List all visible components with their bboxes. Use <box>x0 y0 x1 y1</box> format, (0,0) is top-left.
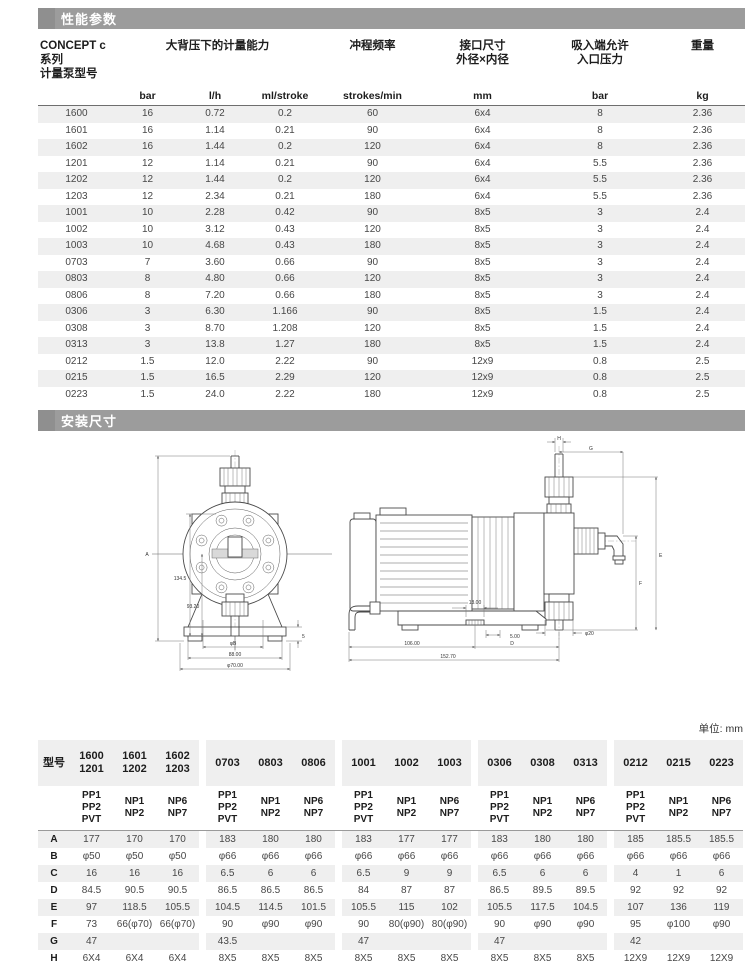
table-cell: 2.34 <box>180 189 250 206</box>
table-cell: 4.68 <box>180 238 250 255</box>
table-cell: 0306 <box>478 740 521 786</box>
table-cell: NP6 NP7 <box>292 786 335 831</box>
table-cell: 1.5 <box>540 321 660 338</box>
table-cell: 0803 <box>38 271 115 288</box>
unit-port: mm <box>425 81 540 106</box>
table-cell: φ50 <box>156 848 199 865</box>
table-cell: 16 <box>115 123 180 140</box>
table-cell: 8X5 <box>428 950 471 967</box>
col-header-weight: 重量 <box>660 36 745 81</box>
table-row: F7366(φ70)66(φ70)90φ90φ909080(φ90)80(φ90… <box>38 916 743 933</box>
table-cell: 12 <box>115 189 180 206</box>
table-row: C1616166.5666.5996.566416 <box>38 865 743 882</box>
dim-label-g: G <box>589 446 593 452</box>
table-cell <box>113 933 156 950</box>
table-cell: PP1 PP2 PVT <box>614 786 657 831</box>
table-cell: 90 <box>320 304 425 321</box>
table-cell: 8X5 <box>206 950 249 967</box>
dim-label-height-1: 134.5 <box>174 576 187 582</box>
table-cell: 8 <box>115 271 180 288</box>
table-cell: 86.5 <box>249 882 292 899</box>
table-cell: 16.5 <box>180 370 250 387</box>
table-cell: 0212 <box>38 354 115 371</box>
unit-suction: bar <box>540 81 660 106</box>
table-cell: φ66 <box>385 848 428 865</box>
group-gap <box>199 916 206 933</box>
table-cell: 5.5 <box>540 172 660 189</box>
perf-header-row: CONCEPT c系列 计量泵型号 大背压下的计量能力 冲程频率 接口尺寸 外径… <box>38 36 745 81</box>
group-gap <box>199 786 206 831</box>
table-cell: NP1 NP2 <box>113 786 156 831</box>
unit-blank <box>38 81 115 106</box>
table-cell: 16 <box>156 865 199 882</box>
table-cell: PP1 PP2 PVT <box>478 786 521 831</box>
table-cell: 177 <box>385 831 428 849</box>
table-cell: 92 <box>657 882 700 899</box>
table-cell: 24.0 <box>180 387 250 404</box>
table-cell: 0223 <box>700 740 743 786</box>
table-cell: 9 <box>428 865 471 882</box>
table-cell: 86.5 <box>292 882 335 899</box>
table-cell: 0306 <box>38 304 115 321</box>
group-gap <box>607 882 614 899</box>
table-cell: 6 <box>700 865 743 882</box>
table-cell: 6X4 <box>156 950 199 967</box>
dimension-table: 型号1600 12011601 12021602 120307030803080… <box>38 740 743 967</box>
table-cell: φ90 <box>564 916 607 933</box>
row-label: D <box>38 882 70 899</box>
table-row: 型号1600 12011601 12021602 120307030803080… <box>38 740 743 786</box>
table-cell: 10 <box>115 205 180 222</box>
table-cell: 117.5 <box>521 899 564 916</box>
table-cell: 3 <box>540 222 660 239</box>
table-cell: 1 <box>657 865 700 882</box>
row-label: F <box>38 916 70 933</box>
table-cell: 180 <box>320 337 425 354</box>
table-cell: φ50 <box>70 848 113 865</box>
table-row: E97118.5105.5104.5114.5101.5105.51151021… <box>38 899 743 916</box>
table-cell: 2.4 <box>660 271 745 288</box>
table-row: G4743.5474742 <box>38 933 743 950</box>
table-cell: 6x4 <box>425 139 540 156</box>
title-bar-accent <box>38 8 55 29</box>
table-cell: 8X5 <box>342 950 385 967</box>
table-cell: 105.5 <box>342 899 385 916</box>
table-row: 080384.800.661208x532.4 <box>38 271 745 288</box>
table-row: D84.590.590.586.586.586.584878786.589.58… <box>38 882 743 899</box>
dim-label-d: D <box>510 641 514 647</box>
table-cell: 47 <box>342 933 385 950</box>
table-cell: 6x4 <box>425 189 540 206</box>
pump-side-view-drawing: H G F E 13.00 5.00 106.00 D 152.70 φ20 <box>340 434 670 670</box>
table-cell: 180 <box>320 387 425 404</box>
table-cell: 6 <box>249 865 292 882</box>
table-cell: 8X5 <box>564 950 607 967</box>
table-row: 02151.516.52.2912012x90.82.5 <box>38 370 745 387</box>
table-cell: 90 <box>320 205 425 222</box>
table-cell: 185.5 <box>657 831 700 849</box>
table-cell: 2.36 <box>660 172 745 189</box>
table-cell: 170 <box>113 831 156 849</box>
title-bar-accent <box>38 410 55 431</box>
table-cell: 73 <box>70 916 113 933</box>
table-row: 1600160.720.2606x482.36 <box>38 106 745 123</box>
table-cell: φ90 <box>700 916 743 933</box>
table-cell: 8X5 <box>478 950 521 967</box>
table-cell: φ66 <box>564 848 607 865</box>
table-cell <box>156 933 199 950</box>
table-cell: 90 <box>206 916 249 933</box>
table-cell: 1600 <box>38 106 115 123</box>
table-cell <box>385 933 428 950</box>
table-cell: 1.5 <box>115 354 180 371</box>
table-cell: 90 <box>320 354 425 371</box>
table-cell: 1001 <box>38 205 115 222</box>
table-cell: 1002 <box>38 222 115 239</box>
group-gap <box>607 916 614 933</box>
table-cell: 1601 1202 <box>113 740 156 786</box>
table-cell: 87 <box>428 882 471 899</box>
datasheet-page: 性能参数 CONCEPT c系列 计量泵型号 大背压下的计量能力 冲程频率 接口… <box>0 0 750 970</box>
table-cell: 183 <box>206 831 249 849</box>
table-cell <box>428 933 471 950</box>
table-cell: 12X9 <box>657 950 700 967</box>
table-row: 0313313.81.271808x51.52.4 <box>38 337 745 354</box>
table-cell: 1.44 <box>180 139 250 156</box>
table-cell: 66(φ70) <box>156 916 199 933</box>
table-cell: 90 <box>320 123 425 140</box>
table-cell: 0.21 <box>250 156 320 173</box>
table-cell: φ66 <box>478 848 521 865</box>
table-cell: 4.80 <box>180 271 250 288</box>
table-cell: 180 <box>320 238 425 255</box>
table-cell: 80(φ90) <box>428 916 471 933</box>
table-cell: 120 <box>320 370 425 387</box>
performance-section-title: 性能参数 <box>61 9 117 28</box>
table-cell: 1602 <box>38 139 115 156</box>
table-cell: 6x4 <box>425 123 540 140</box>
table-cell: 105.5 <box>478 899 521 916</box>
table-cell: 107 <box>614 899 657 916</box>
group-gap <box>335 950 342 967</box>
group-gap <box>607 865 614 882</box>
table-cell: 3 <box>540 255 660 272</box>
dimensions-section-title: 安装尺寸 <box>61 411 117 430</box>
table-cell: 105.5 <box>156 899 199 916</box>
table-cell: PP1 PP2 PVT <box>342 786 385 831</box>
table-row: 02121.512.02.229012x90.82.5 <box>38 354 745 371</box>
group-gap <box>335 831 342 849</box>
table-cell: φ66 <box>521 848 564 865</box>
table-row: 070373.600.66908x532.4 <box>38 255 745 272</box>
table-cell: NP6 NP7 <box>428 786 471 831</box>
table-row: 1002103.120.431208x532.4 <box>38 222 745 239</box>
group-gap <box>471 933 478 950</box>
table-cell: 180 <box>521 831 564 849</box>
table-cell: 2.5 <box>660 370 745 387</box>
table-cell: 1202 <box>38 172 115 189</box>
table-cell: 8 <box>540 139 660 156</box>
table-row: 1203122.340.211806x45.52.36 <box>38 189 745 206</box>
table-cell: 2.36 <box>660 189 745 206</box>
table-cell: 2.28 <box>180 205 250 222</box>
table-cell: 5.5 <box>540 156 660 173</box>
table-cell: 0.21 <box>250 123 320 140</box>
table-cell: 1.166 <box>250 304 320 321</box>
table-cell: 6x4 <box>425 106 540 123</box>
table-cell: 120 <box>320 222 425 239</box>
table-cell: 5.5 <box>540 189 660 206</box>
table-cell: 43.5 <box>206 933 249 950</box>
table-cell: 90 <box>320 156 425 173</box>
table-cell: 0308 <box>38 321 115 338</box>
table-cell: φ50 <box>113 848 156 865</box>
table-cell: 2.4 <box>660 222 745 239</box>
table-cell: 0806 <box>38 288 115 305</box>
table-cell: 0308 <box>521 740 564 786</box>
table-cell: 12X9 <box>700 950 743 967</box>
table-row: 1003104.680.431808x532.4 <box>38 238 745 255</box>
group-gap <box>335 786 342 831</box>
table-cell: 6.5 <box>478 865 521 882</box>
table-cell: 12X9 <box>614 950 657 967</box>
table-cell <box>657 933 700 950</box>
table-cell: 7 <box>115 255 180 272</box>
table-cell: 0.66 <box>250 271 320 288</box>
table-cell: 2.36 <box>660 139 745 156</box>
table-cell: 3 <box>540 238 660 255</box>
dimension-table-body: 型号1600 12011601 12021602 120307030803080… <box>38 740 743 967</box>
table-cell: 3 <box>115 321 180 338</box>
table-cell: 92 <box>700 882 743 899</box>
dim-label-dia-b: φB <box>230 641 237 647</box>
table-cell: 86.5 <box>478 882 521 899</box>
group-gap <box>199 865 206 882</box>
table-cell: 170 <box>156 831 199 849</box>
table-cell <box>564 933 607 950</box>
table-row: H6X46X46X48X58X58X58X58X58X58X58X58X512X… <box>38 950 743 967</box>
table-cell: 0.43 <box>250 222 320 239</box>
unit-per-stroke: ml/stroke <box>250 81 320 106</box>
table-cell: 0215 <box>38 370 115 387</box>
table-cell: 136 <box>657 899 700 916</box>
table-cell: 6.5 <box>342 865 385 882</box>
perf-table-body: 1600160.720.2606x482.361601161.140.21906… <box>38 106 745 404</box>
dim-label-offset: 5.00 <box>510 634 520 640</box>
table-cell <box>292 933 335 950</box>
table-cell: 1.5 <box>540 337 660 354</box>
table-cell: 16 <box>115 139 180 156</box>
table-cell: 120 <box>320 271 425 288</box>
table-cell: 1.5 <box>115 370 180 387</box>
group-gap <box>607 786 614 831</box>
table-cell: 8x5 <box>425 321 540 338</box>
table-cell <box>521 933 564 950</box>
table-cell: 8x5 <box>425 238 540 255</box>
row-label: G <box>38 933 70 950</box>
table-cell: 120 <box>320 172 425 189</box>
table-cell: NP1 NP2 <box>249 786 292 831</box>
table-cell: 177 <box>428 831 471 849</box>
table-cell: 0.2 <box>250 106 320 123</box>
table-cell: 0.72 <box>180 106 250 123</box>
unit-pressure: bar <box>115 81 180 106</box>
table-cell: 16 <box>115 106 180 123</box>
table-row: 030838.701.2081208x51.52.4 <box>38 321 745 338</box>
table-cell: 0.2 <box>250 172 320 189</box>
table-cell <box>700 933 743 950</box>
table-cell: 90.5 <box>156 882 199 899</box>
table-cell: 89.5 <box>564 882 607 899</box>
table-cell: 16 <box>113 865 156 882</box>
table-cell: φ90 <box>292 916 335 933</box>
table-cell <box>249 933 292 950</box>
table-cell: 0223 <box>38 387 115 404</box>
dim-label-f: F <box>639 581 642 587</box>
perf-units-row: bar l/h ml/stroke strokes/min mm bar kg <box>38 81 745 106</box>
table-cell: φ66 <box>342 848 385 865</box>
table-cell: 2.4 <box>660 304 745 321</box>
dim-label-width: 88.00 <box>229 652 242 658</box>
table-cell: 12 <box>115 156 180 173</box>
table-cell: 0.66 <box>250 255 320 272</box>
group-gap <box>335 899 342 916</box>
table-cell: 2.29 <box>250 370 320 387</box>
table-cell: 115 <box>385 899 428 916</box>
table-cell: 102 <box>428 899 471 916</box>
table-cell: 180 <box>564 831 607 849</box>
table-cell: φ66 <box>657 848 700 865</box>
table-cell: 6.30 <box>180 304 250 321</box>
table-cell: 8x5 <box>425 222 540 239</box>
table-cell: 2.22 <box>250 387 320 404</box>
table-cell: 12x9 <box>425 370 540 387</box>
col-header-capacity: 大背压下的计量能力 <box>115 36 320 81</box>
group-gap <box>607 933 614 950</box>
table-cell: 0703 <box>38 255 115 272</box>
row-label: C <box>38 865 70 882</box>
unit-note: 单位: mm <box>699 721 743 736</box>
table-row: 1201121.140.21906x45.52.36 <box>38 156 745 173</box>
table-cell: 0215 <box>657 740 700 786</box>
table-cell: 185 <box>614 831 657 849</box>
group-gap <box>335 865 342 882</box>
pump-front-view-drawing: A 134.5 93.20 φB 88.00 φ70.00 5 <box>140 442 345 697</box>
table-cell: 8X5 <box>249 950 292 967</box>
table-cell: 180 <box>292 831 335 849</box>
table-cell: 2.4 <box>660 205 745 222</box>
table-cell: 6 <box>521 865 564 882</box>
table-cell: φ90 <box>249 916 292 933</box>
dim-label-overall-height: A <box>145 552 149 558</box>
table-cell: φ66 <box>700 848 743 865</box>
table-cell: 90 <box>342 916 385 933</box>
group-gap <box>335 916 342 933</box>
group-gap <box>199 950 206 967</box>
table-cell: 8x5 <box>425 304 540 321</box>
table-row: 1602161.440.21206x482.36 <box>38 139 745 156</box>
table-cell: 1001 <box>342 740 385 786</box>
table-cell: 2.4 <box>660 337 745 354</box>
table-cell: 8 <box>540 123 660 140</box>
table-cell: 86.5 <box>206 882 249 899</box>
table-cell: 8X5 <box>292 950 335 967</box>
table-cell: NP1 NP2 <box>657 786 700 831</box>
col-header-stroke-frequency: 冲程频率 <box>320 36 425 81</box>
table-cell: φ66 <box>614 848 657 865</box>
table-cell: 87 <box>385 882 428 899</box>
col-header-model: CONCEPT c系列 计量泵型号 <box>38 36 115 81</box>
table-cell: 60 <box>320 106 425 123</box>
table-cell: 97 <box>70 899 113 916</box>
table-cell: PP1 PP2 PVT <box>70 786 113 831</box>
table-cell: 1602 1203 <box>156 740 199 786</box>
table-cell: 180 <box>320 189 425 206</box>
table-cell: φ66 <box>428 848 471 865</box>
table-cell: 92 <box>614 882 657 899</box>
table-cell: 8x5 <box>425 255 540 272</box>
row-label: 型号 <box>38 740 70 786</box>
dim-label-slot: 13.00 <box>469 600 482 606</box>
group-gap <box>471 882 478 899</box>
table-cell: 0313 <box>38 337 115 354</box>
table-cell: 16 <box>70 865 113 882</box>
table-cell: 180 <box>249 831 292 849</box>
table-cell: 80(φ90) <box>385 916 428 933</box>
table-cell: 183 <box>478 831 521 849</box>
table-cell: 104.5 <box>564 899 607 916</box>
table-cell: 1.5 <box>115 387 180 404</box>
table-cell: 6 <box>564 865 607 882</box>
group-gap <box>199 933 206 950</box>
table-cell: 0.8 <box>540 354 660 371</box>
section-header-performance: 性能参数 <box>38 8 745 29</box>
table-cell: 84 <box>342 882 385 899</box>
table-cell: 104.5 <box>206 899 249 916</box>
performance-table: CONCEPT c系列 计量泵型号 大背压下的计量能力 冲程频率 接口尺寸 外径… <box>38 36 745 403</box>
table-row: 1202121.440.21206x45.52.36 <box>38 172 745 189</box>
table-cell: 84.5 <box>70 882 113 899</box>
table-cell: 12x9 <box>425 387 540 404</box>
table-cell: 3 <box>115 337 180 354</box>
group-gap <box>471 740 478 786</box>
group-gap <box>335 882 342 899</box>
group-gap <box>471 848 478 865</box>
group-gap <box>607 740 614 786</box>
row-label: E <box>38 899 70 916</box>
group-gap <box>607 848 614 865</box>
row-label: B <box>38 848 70 865</box>
table-cell: 0.21 <box>250 189 320 206</box>
table-cell: 119 <box>700 899 743 916</box>
table-cell: 2.4 <box>660 238 745 255</box>
table-cell: 1.14 <box>180 123 250 140</box>
table-cell: 8x5 <box>425 337 540 354</box>
table-cell: 0212 <box>614 740 657 786</box>
table-cell: 177 <box>70 831 113 849</box>
unit-frequency: strokes/min <box>320 81 425 106</box>
section-header-dimensions: 安装尺寸 <box>38 410 745 431</box>
table-cell: 90.5 <box>113 882 156 899</box>
table-cell: 6X4 <box>70 950 113 967</box>
table-cell: φ66 <box>249 848 292 865</box>
table-cell: 8 <box>540 106 660 123</box>
col-header-port-size: 接口尺寸 外径×内径 <box>425 36 540 81</box>
table-cell: 10 <box>115 238 180 255</box>
table-cell: 6.5 <box>206 865 249 882</box>
table-cell: 2.4 <box>660 288 745 305</box>
table-cell: 3 <box>540 288 660 305</box>
